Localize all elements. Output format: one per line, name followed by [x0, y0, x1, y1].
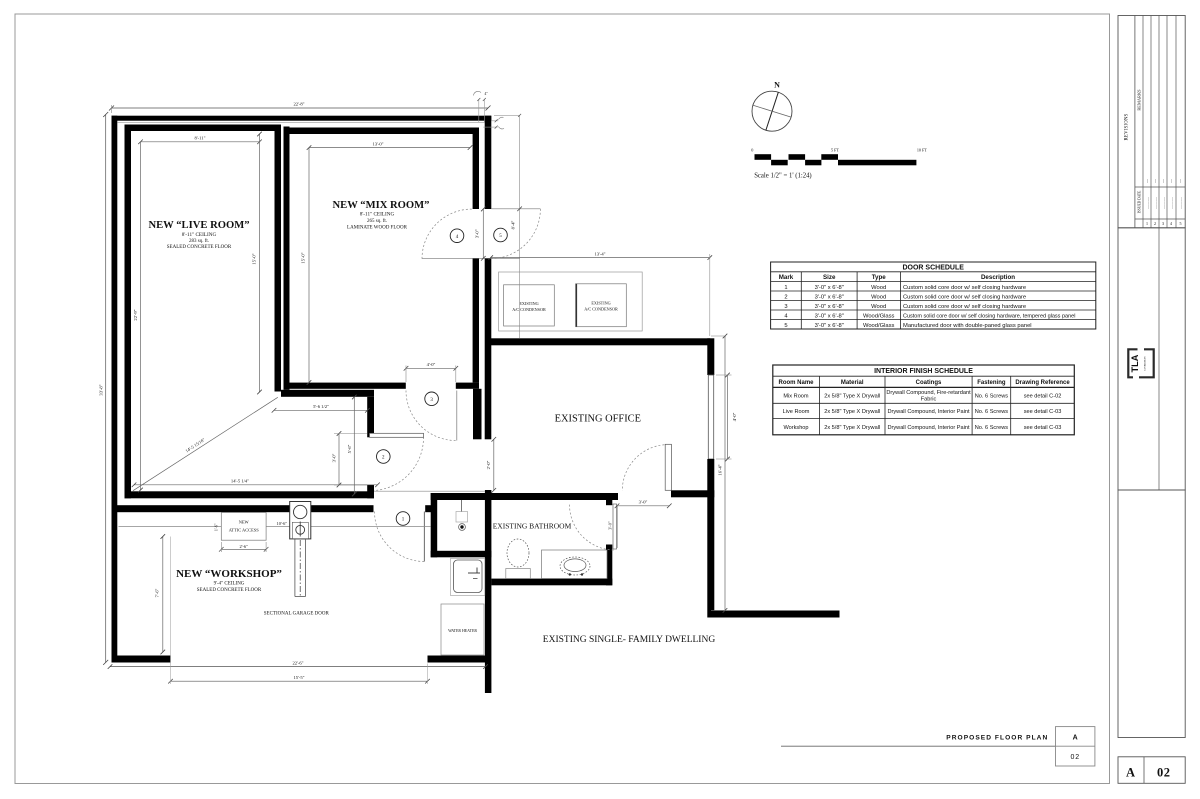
svg-text:Mark: Mark	[779, 274, 794, 281]
svg-text:Type: Type	[872, 274, 887, 281]
svg-text:Drywall Compound, Fire-retarda: Drywall Compound, Fire-retardant	[886, 390, 971, 396]
svg-text:WATER HEATER: WATER HEATER	[448, 629, 477, 633]
svg-text:Mix Room: Mix Room	[783, 394, 809, 400]
svg-text:283 sq. ft.: 283 sq. ft.	[189, 239, 209, 244]
svg-text:Wood/Glass: Wood/Glass	[863, 323, 895, 329]
svg-text:Custom solid core door w/ self: Custom solid core door w/ self closing h…	[903, 285, 1026, 291]
svg-text:Custom solid core door w/ self: Custom solid core door w/ self closing h…	[903, 313, 1075, 319]
svg-text:__.__.__: __.__.__	[1162, 197, 1166, 210]
svg-text:4'-0": 4'-0"	[732, 412, 737, 421]
svg-text:15'-0": 15'-0"	[300, 252, 305, 263]
svg-text:7'-6": 7'-6"	[155, 588, 160, 597]
svg-text:15'-0": 15'-0"	[251, 253, 256, 264]
svg-text:Manufactured door with double-: Manufactured door with double-paned glas…	[903, 323, 1032, 329]
svg-text:0: 0	[751, 148, 753, 153]
svg-text:1: 1	[784, 285, 787, 291]
svg-text:Wood: Wood	[871, 304, 886, 310]
svg-text:265 sq. ft.: 265 sq. ft.	[367, 219, 387, 224]
svg-text:3'-0" x 6'-8": 3'-0" x 6'-8"	[815, 294, 844, 300]
svg-text:15'-5": 15'-5"	[293, 675, 304, 680]
svg-text:EXISTING OFFICE: EXISTING OFFICE	[555, 414, 641, 425]
svg-text:3'-0": 3'-0"	[475, 229, 480, 238]
svg-text:PROPOSED FLOOR PLAN: PROPOSED FLOOR PLAN	[946, 735, 1048, 742]
svg-text:Fabric: Fabric	[921, 397, 937, 403]
svg-text:22'-6": 22'-6"	[292, 660, 303, 665]
svg-text:02: 02	[1071, 754, 1080, 761]
svg-text:22'-8": 22'-8"	[293, 102, 304, 107]
svg-text:NEW “MIX ROOM”: NEW “MIX ROOM”	[333, 200, 430, 211]
svg-text:3: 3	[1162, 221, 1164, 226]
svg-text:EXISTING: EXISTING	[519, 301, 538, 306]
svg-text:8'-11": 8'-11"	[195, 136, 206, 141]
svg-text:3'-0" x 6'-8": 3'-0" x 6'-8"	[815, 323, 844, 329]
svg-text:EXISTING: EXISTING	[591, 301, 610, 306]
svg-text:Custom solid core door w/ self: Custom solid core door w/ self closing h…	[903, 304, 1026, 310]
svg-text:ISSUED DATE: ISSUED DATE	[1138, 190, 1142, 213]
svg-text:Scale 1/2" = 1' (1:24): Scale 1/2" = 1' (1:24)	[754, 171, 812, 179]
svg-text:16'-4": 16'-4"	[717, 464, 722, 475]
svg-text:Workshop: Workshop	[783, 425, 808, 431]
svg-text:A: A	[1073, 735, 1078, 742]
svg-text:—: —	[1161, 178, 1166, 184]
svg-text:INTERIOR FINISH SCHEDULE: INTERIOR FINISH SCHEDULE	[874, 368, 973, 375]
svg-text:Coatings: Coatings	[916, 380, 942, 386]
svg-text:REMARKS: REMARKS	[1137, 89, 1142, 111]
svg-text:02: 02	[1157, 766, 1171, 780]
svg-text:3'-0" x 6'-8": 3'-0" x 6'-8"	[815, 285, 844, 291]
svg-text:LOS ANGELES: LOS ANGELES	[1144, 356, 1147, 371]
svg-text:33'-8": 33'-8"	[99, 384, 104, 395]
svg-text:4": 4"	[485, 92, 489, 96]
svg-text:—: —	[1169, 178, 1174, 184]
svg-text:—: —	[1145, 178, 1150, 184]
svg-text:NEW: NEW	[239, 520, 250, 525]
svg-text:see detail C-03: see detail C-03	[1024, 425, 1062, 431]
svg-text:Room Name: Room Name	[778, 380, 814, 386]
svg-text:2x 5/8" Type X Drywall: 2x 5/8" Type X Drywall	[824, 394, 880, 400]
svg-text:Custom solid core door w/ self: Custom solid core door w/ self closing h…	[903, 294, 1026, 300]
svg-text:__.__.__: __.__.__	[1179, 197, 1183, 210]
svg-text:__.__.__: __.__.__	[1170, 197, 1174, 210]
svg-text:1: 1	[1146, 221, 1148, 226]
svg-text:Description: Description	[981, 274, 1015, 281]
svg-text:Fastening: Fastening	[977, 380, 1006, 386]
svg-text:3'-0" x 6'-8": 3'-0" x 6'-8"	[815, 313, 844, 319]
svg-text:2'-0": 2'-0"	[486, 460, 491, 469]
svg-text:No. 6 Screws: No. 6 Screws	[975, 409, 1008, 415]
svg-text:Live Room: Live Room	[783, 409, 810, 415]
svg-text:13'-0": 13'-0"	[372, 141, 383, 146]
svg-text:ATTIC ACCESS: ATTIC ACCESS	[229, 528, 259, 533]
svg-text:14'-5 1/4": 14'-5 1/4"	[231, 479, 249, 484]
svg-text:8'-11" CEILING: 8'-11" CEILING	[182, 232, 217, 238]
svg-text:EXISTING SINGLE- FAMILY DWELLI: EXISTING SINGLE- FAMILY DWELLING	[543, 635, 716, 645]
svg-text:see detail C-02: see detail C-02	[1024, 394, 1062, 400]
svg-text:4'-0": 4'-0"	[427, 362, 436, 367]
svg-text:A: A	[1126, 766, 1135, 780]
svg-text:5'-6": 5'-6"	[347, 444, 352, 453]
svg-text:N: N	[774, 81, 780, 90]
svg-text:5: 5	[1180, 221, 1182, 226]
svg-text:Size: Size	[823, 274, 836, 281]
svg-text:Drawing Reference: Drawing Reference	[1015, 380, 1070, 386]
svg-text:3'-0": 3'-0"	[332, 453, 337, 462]
svg-text:__.__.__: __.__.__	[1146, 197, 1150, 210]
svg-text:Wood/Glass: Wood/Glass	[863, 313, 895, 319]
svg-text:Drywall Compound, Interior Pai: Drywall Compound, Interior Paint	[887, 409, 970, 415]
svg-text:3'-0" x 6'-8": 3'-0" x 6'-8"	[815, 304, 844, 310]
svg-text:—: —	[1153, 178, 1158, 184]
svg-text:No. 6 Screws: No. 6 Screws	[975, 394, 1008, 400]
svg-text:22'-9": 22'-9"	[133, 309, 138, 320]
svg-text:10 FT: 10 FT	[917, 148, 928, 153]
svg-text:3'-0": 3'-0"	[607, 521, 612, 530]
svg-text:2'-6": 2'-6"	[239, 544, 248, 549]
svg-text:5'-6 1/2": 5'-6 1/2"	[313, 404, 329, 409]
svg-text:SECTIONAL GARAGE DOOR: SECTIONAL GARAGE DOOR	[264, 612, 330, 617]
svg-text:DOOR SCHEDULE: DOOR SCHEDULE	[902, 265, 964, 272]
svg-text:REVISIONS: REVISIONS	[1125, 113, 1130, 140]
svg-text:EXISTING BATHROOM: EXISTING BATHROOM	[493, 522, 572, 531]
svg-text:9'-4" CEILING: 9'-4" CEILING	[214, 582, 245, 587]
svg-text:Drywall Compound, Interior Pai: Drywall Compound, Interior Paint	[887, 425, 970, 431]
svg-text:Wood: Wood	[871, 294, 886, 300]
svg-text:see detail C-03: see detail C-03	[1024, 409, 1062, 415]
svg-text:4: 4	[1170, 221, 1172, 226]
svg-text:LAMINATE WOOD FLOOR: LAMINATE WOOD FLOOR	[347, 226, 408, 231]
svg-text:NEW “WORKSHOP”: NEW “WORKSHOP”	[176, 568, 282, 580]
svg-text:__.__.__: __.__.__	[1154, 197, 1158, 210]
svg-text:SEALED CONCRETE FLOOR: SEALED CONCRETE FLOOR	[167, 245, 232, 250]
svg-text:2: 2	[1154, 221, 1156, 226]
svg-text:Wood: Wood	[871, 285, 886, 291]
svg-text:2: 2	[784, 294, 787, 300]
svg-text:—: —	[1178, 178, 1183, 184]
svg-text:SEALED CONCRETE FLOOR: SEALED CONCRETE FLOOR	[197, 588, 262, 593]
svg-text:1'-6": 1'-6"	[213, 523, 218, 531]
svg-text:No. 6 Screws: No. 6 Screws	[975, 425, 1008, 431]
svg-text:5: 5	[784, 323, 787, 329]
svg-text:3: 3	[784, 304, 787, 310]
svg-text:3'-0": 3'-0"	[639, 499, 648, 504]
svg-text:NEW “LIVE ROOM”: NEW “LIVE ROOM”	[148, 220, 249, 231]
svg-text:A/C CONDENSOR: A/C CONDENSOR	[512, 307, 546, 312]
svg-text:2x 5/8" Type X Drywall: 2x 5/8" Type X Drywall	[824, 409, 880, 415]
svg-text:Material: Material	[841, 380, 864, 386]
svg-text:13'-4": 13'-4"	[594, 251, 605, 256]
svg-text:8'-4": 8'-4"	[511, 220, 516, 229]
svg-text:2x 5/8" Type X Drywall: 2x 5/8" Type X Drywall	[824, 425, 880, 431]
svg-text:4: 4	[784, 313, 788, 319]
svg-text:TLA: TLA	[1130, 354, 1140, 372]
svg-text:10'-6": 10'-6"	[277, 521, 288, 526]
svg-text:5 FT: 5 FT	[831, 148, 839, 153]
svg-text:8'-11" CEILING: 8'-11" CEILING	[360, 212, 395, 218]
svg-text:A/C CONDENSOR: A/C CONDENSOR	[584, 307, 618, 312]
